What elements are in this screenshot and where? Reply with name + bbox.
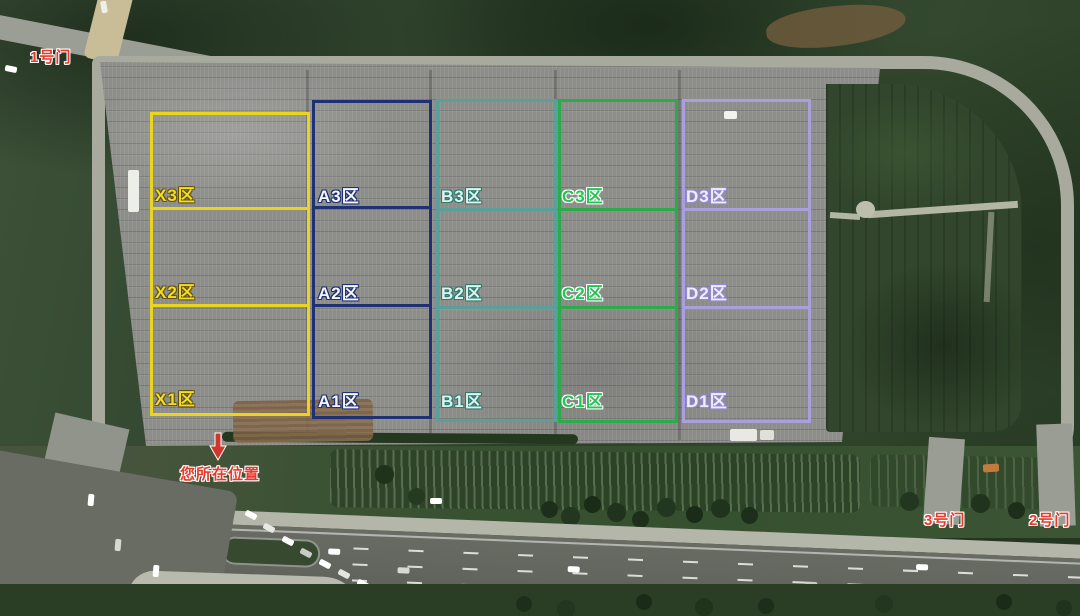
zone-label-c3: C3区 — [562, 188, 604, 205]
car — [114, 539, 121, 551]
zone-label-d3: D3区 — [686, 188, 728, 205]
car — [87, 494, 94, 506]
field-path — [868, 201, 1018, 218]
satellite-map: X3区 X2区 X1区 A3区 A2区 A1区 B3区 B2区 B1区 C3区 … — [0, 0, 1080, 616]
planting-rows — [330, 449, 861, 513]
zone-label-x2: X2区 — [155, 284, 196, 301]
car — [568, 566, 580, 572]
zone-label-b1: B1区 — [441, 393, 483, 410]
zone-b-boundary — [436, 99, 557, 422]
field-path — [984, 212, 995, 302]
zone-divider — [560, 208, 676, 211]
zone-d-boundary — [682, 99, 811, 423]
gate1-label: 1号门 — [30, 50, 71, 65]
car — [397, 567, 409, 573]
green-verge — [0, 584, 1080, 616]
white-structure — [760, 430, 774, 440]
car — [5, 65, 18, 73]
field-path — [830, 212, 860, 220]
gate3-label: 3号门 — [924, 513, 965, 528]
zone-c-boundary — [558, 99, 678, 423]
location-marker-icon — [208, 431, 228, 462]
zone-label-x1: X1区 — [155, 391, 196, 408]
zone-a-boundary — [312, 100, 432, 419]
zone-divider — [152, 207, 308, 210]
parking-aisle — [678, 70, 681, 440]
dirt-patch — [764, 0, 908, 54]
zone-label-b2: B2区 — [441, 285, 483, 302]
green-field — [826, 84, 1022, 432]
zone-label-a1: A1区 — [318, 393, 360, 410]
field-roundabout — [856, 201, 875, 218]
zone-label-x3: X3区 — [155, 187, 196, 204]
car — [916, 564, 928, 570]
car — [152, 565, 159, 577]
zone-label-d2: D2区 — [686, 285, 728, 302]
white-structure — [730, 429, 757, 441]
zone-divider — [684, 306, 809, 309]
gate2-label: 2号门 — [1029, 513, 1070, 528]
zone-divider — [152, 304, 308, 307]
zone-label-c2: C2区 — [562, 285, 604, 302]
zone-divider — [438, 306, 555, 309]
truck — [983, 463, 1000, 472]
parked-bus — [128, 170, 139, 212]
car — [328, 548, 340, 554]
zone-label-a2: A2区 — [318, 285, 360, 302]
planting-rows — [870, 454, 1061, 509]
location-label: 您所在位置 — [180, 467, 260, 482]
car — [430, 498, 442, 504]
zone-label-a3: A3区 — [318, 188, 360, 205]
zone-divider — [438, 208, 555, 211]
zone-label-d1: D1区 — [686, 393, 728, 410]
zone-divider — [314, 304, 430, 307]
tree-cluster — [0, 0, 8, 8]
zone-x-boundary — [150, 112, 310, 416]
zone-divider — [684, 208, 809, 211]
zone-label-b3: B3区 — [441, 188, 483, 205]
zone-divider — [560, 306, 676, 309]
zone-divider — [314, 206, 430, 209]
zone-label-c1: C1区 — [562, 393, 604, 410]
